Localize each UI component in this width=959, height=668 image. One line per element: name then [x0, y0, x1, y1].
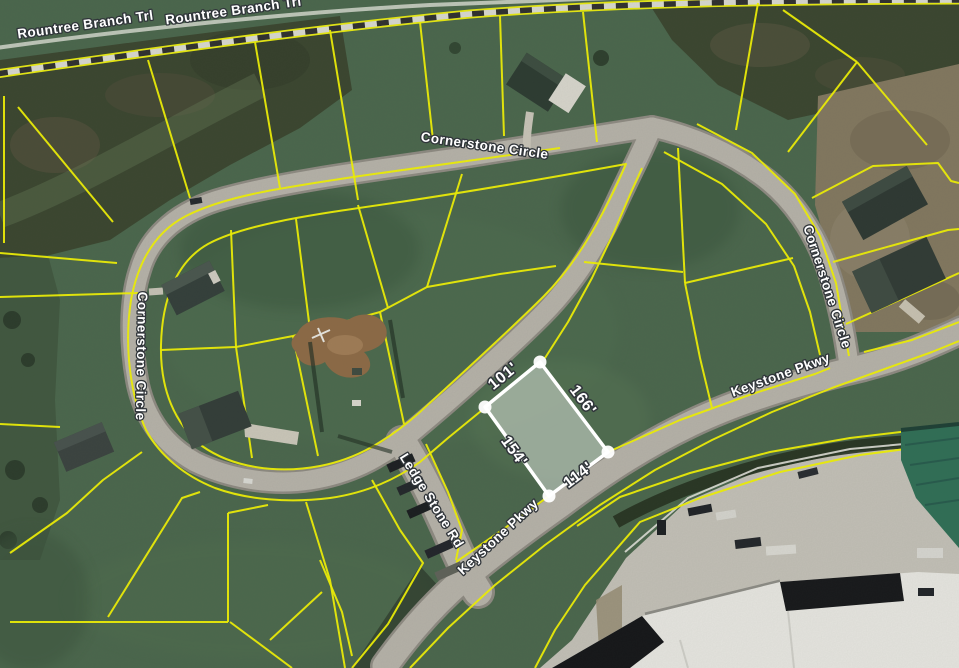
- road-label-cornerstone-left: Cornerstone Circle: [133, 292, 150, 421]
- vertex-handle-south[interactable]: [543, 490, 556, 503]
- vertex-handle-north[interactable]: [534, 356, 547, 369]
- aerial-map-canvas[interactable]: 101' 166' 154' 114' Rountree Branch Trl …: [0, 0, 959, 668]
- vertex-handle-east[interactable]: [602, 446, 615, 459]
- vertex-handle-west[interactable]: [479, 401, 492, 414]
- map-viewport[interactable]: 101' 166' 154' 114' Rountree Branch Trl …: [0, 0, 959, 668]
